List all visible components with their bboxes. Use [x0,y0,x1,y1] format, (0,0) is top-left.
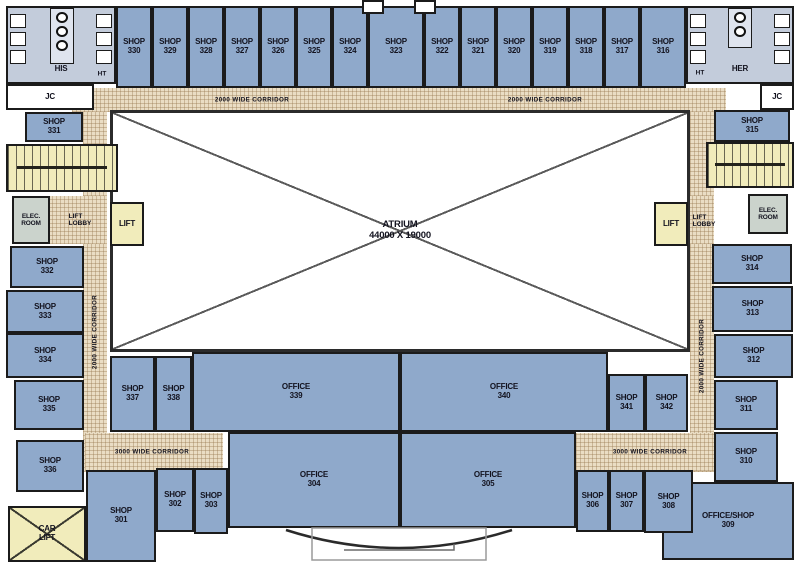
lift-left: LIFT [110,202,144,246]
lift-lobby-right-label: LIFTLOBBY [693,214,716,228]
toilet-stall [96,14,112,28]
room-shop-303: SHOP303 [194,468,228,534]
room-shop-318: SHOP318 [568,6,604,88]
floor-plan: ATRIUM 44000 X 19000 HIS JC HT SHOP330 S… [0,0,800,568]
atrium-label: ATRIUM 44000 X 19000 [369,220,431,241]
room-shop-323: SHOP323 [368,6,424,88]
toilet-stall [774,14,790,28]
room-shop-334: SHOP334 [6,333,84,378]
room-shop-331: SHOP331 [25,112,83,142]
room-shop-316: SHOP316 [640,6,686,88]
car-lift: CARLIFT [8,506,86,562]
room-shop-308: SHOP308 [644,470,693,533]
fixture-strip [728,8,752,48]
room-shop-301: SHOP301 [86,470,156,562]
room-label: HIS [55,65,68,74]
corridor-top [72,88,726,112]
toilet-stall [10,14,26,28]
room-shop-329: SHOP329 [152,6,188,88]
room-shop-306: SHOP306 [576,470,609,532]
room-shop-315: SHOP315 [714,110,790,142]
urinal-strip [50,8,74,64]
room-office-304: OFFICE304 [228,432,400,528]
staircase-right [706,142,794,188]
room-shop-330: SHOP330 [116,6,152,88]
room-jc-left: JC [6,84,94,110]
room-office-340: OFFICE340 [400,352,608,432]
room-shop-338: SHOP338 [155,356,192,432]
room-shop-311: SHOP311 [714,380,778,430]
corridor-label-right: 2000 WIDE CORRIDOR [699,319,706,393]
staircase-left [6,144,118,192]
room-shop-317: SHOP317 [604,6,640,88]
room-shop-314: SHOP314 [712,244,792,284]
room-elec-right: ELEC.ROOM [748,194,788,234]
toilet-stall [774,50,790,64]
room-shop-326: SHOP326 [260,6,296,88]
toilet-stall [10,32,26,46]
room-shop-321: SHOP321 [460,6,496,88]
lift-right: LIFT [654,202,688,246]
roof-vent [414,0,436,14]
toilet-stall [96,32,112,46]
room-label: HER [732,65,748,74]
corridor-label-bottom-left: 3000 WIDE CORRIDOR [115,449,189,456]
room-shop-302: SHOP302 [156,468,194,532]
room-label: JC [772,93,782,102]
room-office-305: OFFICE305 [400,432,576,528]
room-shop-307: SHOP307 [609,470,644,532]
room-ht-left-label: HT [98,71,107,78]
room-shop-335: SHOP335 [14,380,84,430]
room-shop-327: SHOP327 [224,6,260,88]
room-shop-312: SHOP312 [714,334,793,378]
room-shop-336: SHOP336 [16,440,84,492]
lift-lobby-left-label: LIFTLOBBY [69,213,92,227]
roof-vent [362,0,384,14]
room-shop-320: SHOP320 [496,6,532,88]
entrance-canopy [282,526,516,568]
toilet-stall [690,14,706,28]
room-label: JC [45,93,55,102]
room-shop-328: SHOP328 [188,6,224,88]
room-shop-342: SHOP342 [645,374,688,432]
toilet-stall [774,32,790,46]
room-ht-right-label: HT [696,70,705,77]
room-shop-322: SHOP322 [424,6,460,88]
room-shop-341: SHOP341 [608,374,645,432]
toilet-stall [690,50,706,64]
room-shop-313: SHOP313 [712,286,793,332]
room-shop-310: SHOP310 [714,432,778,482]
corridor-label-top-right: 2000 WIDE CORRIDOR [508,97,582,104]
toilet-stall [690,32,706,46]
room-shop-324: SHOP324 [332,6,368,88]
toilet-stall [96,50,112,64]
room-shop-325: SHOP325 [296,6,332,88]
room-shop-319: SHOP319 [532,6,568,88]
corridor-label-left: 2000 WIDE CORRIDOR [92,295,99,369]
corridor-label-bottom-right: 3000 WIDE CORRIDOR [613,449,687,456]
atrium: ATRIUM 44000 X 19000 [110,110,690,352]
room-elec-left: ELEC.ROOM [12,196,50,244]
room-shop-333: SHOP333 [6,290,84,333]
room-office-339: OFFICE339 [192,352,400,432]
room-jc-right: JC [760,84,794,110]
toilet-stall [10,50,26,64]
room-shop-332: SHOP332 [10,246,84,288]
room-shop-337: SHOP337 [110,356,155,432]
corridor-label-top-left: 2000 WIDE CORRIDOR [215,97,289,104]
